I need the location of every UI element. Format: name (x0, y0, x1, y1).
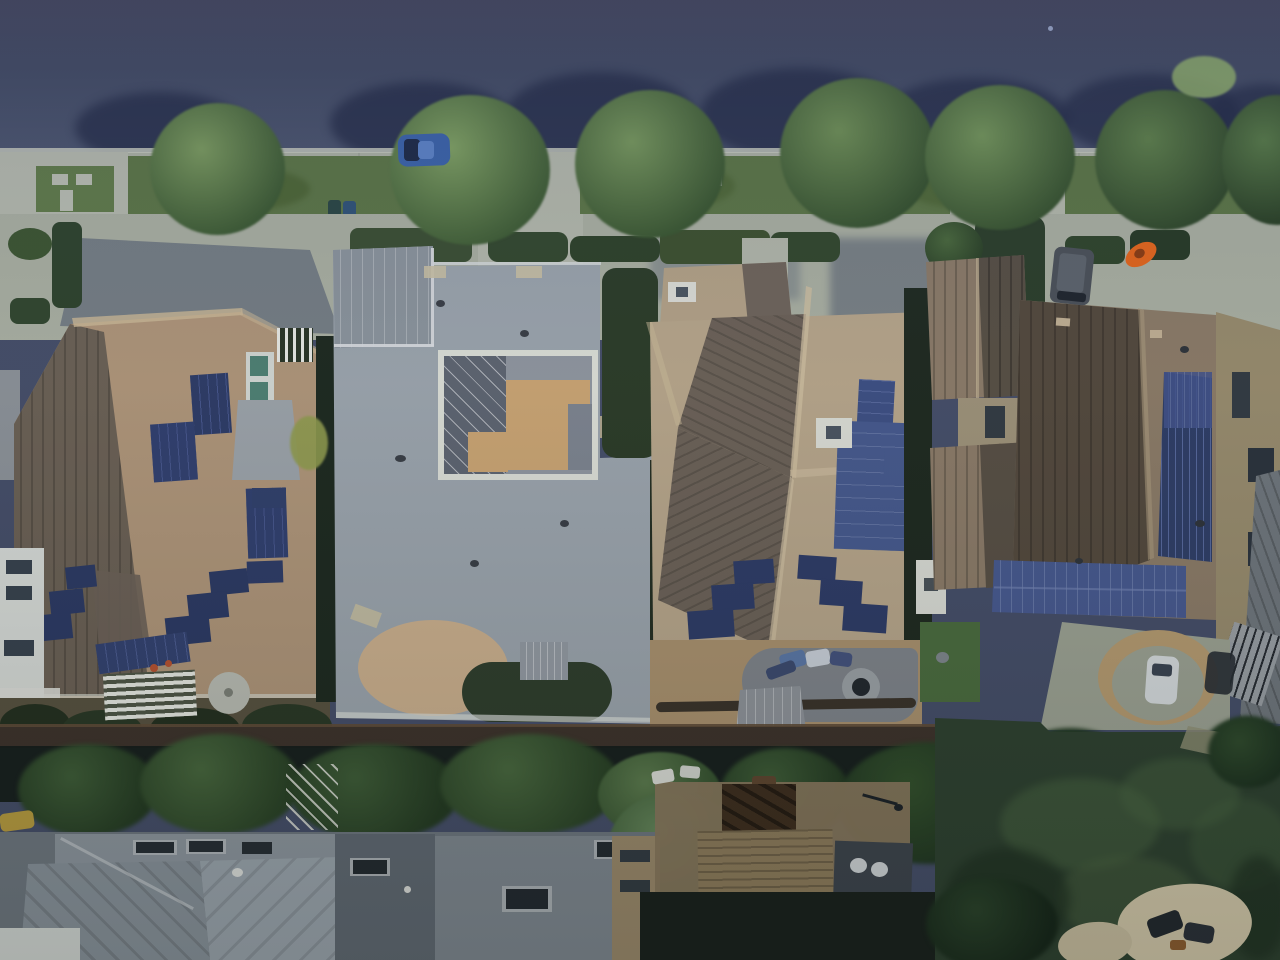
color-grade (0, 0, 1280, 960)
aerial-neighborhood-photo (0, 0, 1280, 960)
